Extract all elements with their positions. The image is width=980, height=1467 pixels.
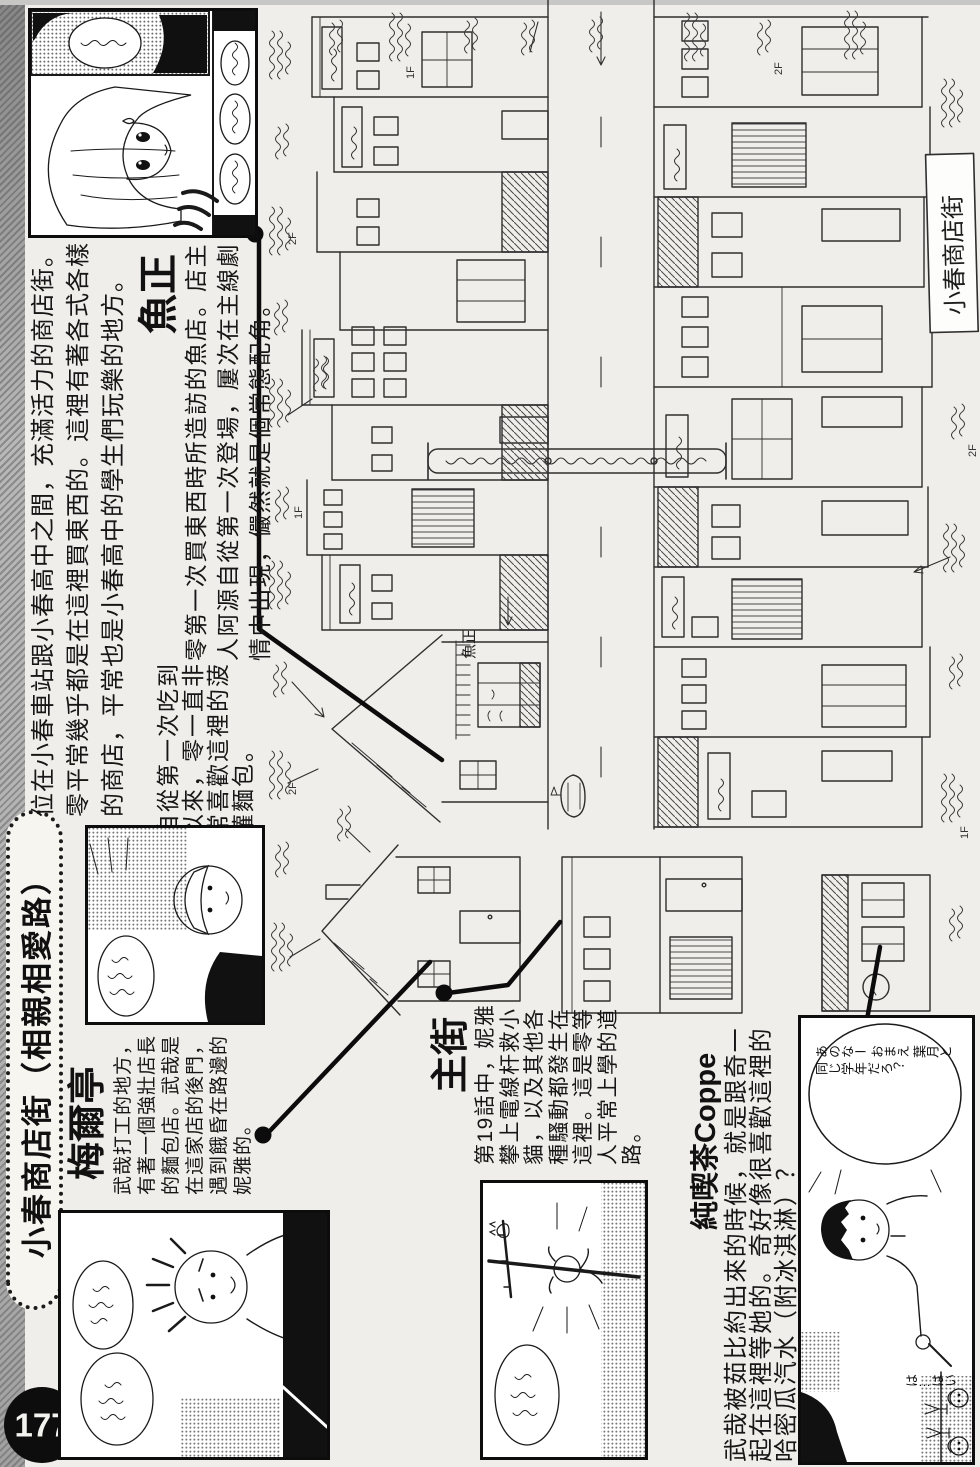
- manga-panel-4: [480, 1180, 648, 1460]
- merutei-body: 武哉打工的地方，有著一個強壯店長的麵包店。武哉是在這家店的後門，遇到餓昏在路邊的…: [112, 1029, 256, 1195]
- mainstreet-heading: 主街: [419, 1017, 474, 1093]
- mainstreet-body: 第19話中，妮雅攀上電線杆救小貓，以及其他各種騷動都發生在這裡。這是零等人平常上…: [474, 999, 646, 1165]
- coppe-body: 武哉被茹比約出來的時候，就是跟奇一起在這裡等她的。奇好像很喜歡這裡的哈密瓜汽水（…: [724, 1018, 799, 1462]
- street-map-sketch: 魚正: [262, 0, 980, 1027]
- manga-panel-2: [85, 825, 265, 1025]
- street-cart-sketch: [551, 775, 585, 817]
- intro-paragraph: 位在小春車站跟小春高中之間，充滿活力的商店街。零平常幾乎都是在這裡買東西的。這裡…: [26, 237, 131, 817]
- uomasa-body: 零第一次買東西時所造訪的魚店。店主人阿源自從第一次登場，屢次在主線劇情中出現，儼…: [180, 235, 276, 661]
- svg-text:2F: 2F: [773, 62, 785, 75]
- uomasa-heading: 魚正: [126, 254, 184, 334]
- note-leader-arrows: [288, 22, 950, 957]
- fish-shop-building: 魚正: [332, 629, 548, 822]
- svg-text:2F: 2F: [287, 232, 299, 245]
- manga-panel-1: [28, 8, 258, 238]
- manga-panel-5: あのなー おまえ 葉月と同じ学年だろ？ は…はい: [798, 1015, 975, 1465]
- speech-bubble-senpai: あのなー おまえ 葉月と同じ学年だろ？: [815, 1044, 959, 1078]
- map-sign-box: 小春商店街: [926, 153, 979, 332]
- corner-building: [562, 857, 742, 1013]
- bakery-building: [322, 845, 520, 1015]
- manga-panel-3: [58, 1210, 330, 1460]
- svg-text:1F: 1F: [959, 826, 971, 839]
- merutei-heading: 梅爾亭: [56, 1066, 111, 1180]
- map-sign-text: 小春商店街: [940, 195, 970, 316]
- svg-text:2F: 2F: [967, 444, 979, 457]
- coppe-heading: 純喫茶Coppe: [682, 1053, 724, 1230]
- cafe-building: [822, 875, 930, 1011]
- fish-shop-sign: 魚正: [461, 629, 478, 659]
- svg-text:1F: 1F: [405, 66, 417, 79]
- shop-row-top: [302, 17, 548, 630]
- connector-dot-merutei: [255, 1127, 272, 1144]
- svg-text:1F: 1F: [293, 506, 305, 519]
- street-gate-banner: [428, 443, 726, 479]
- uomasa-note: 自從第一次吃到以來，零一直非常喜歡這裡的菠蘿麵包。: [156, 649, 256, 837]
- rotated-page: 魚正: [0, 0, 980, 1467]
- svg-text:2F: 2F: [287, 782, 299, 795]
- page-title: 小春商店街（相親相愛路）: [6, 810, 63, 1310]
- shop-row-bottom: [654, 17, 932, 827]
- floor-labels: 2F 1F 2F 1F 2F 1F 2F: [287, 62, 979, 839]
- street-road: [548, 0, 654, 829]
- speech-bubble-reply: は…はい: [905, 1373, 961, 1390]
